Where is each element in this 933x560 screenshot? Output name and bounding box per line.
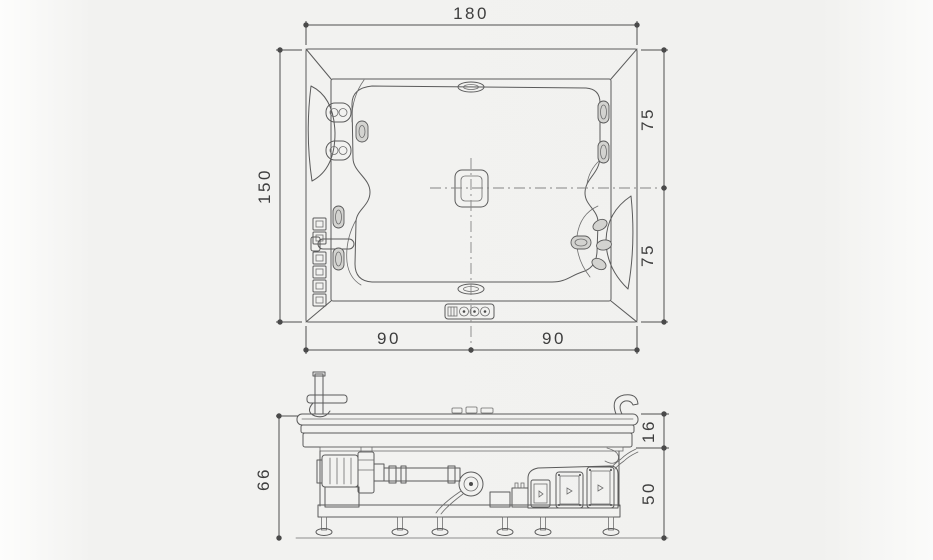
drawing-canvas: 180 150 75 75 90 90 xyxy=(0,0,933,560)
control-box-medium xyxy=(556,472,583,508)
dim-rim-height: 16 xyxy=(636,411,669,450)
foot xyxy=(535,517,551,536)
jet-cluster-right xyxy=(590,217,612,272)
jet-right-wall-upper xyxy=(598,101,609,123)
jet-seatback xyxy=(356,121,368,142)
foot xyxy=(392,517,408,536)
dim-total-depth: 150 xyxy=(255,47,302,324)
foot xyxy=(603,517,619,536)
foot xyxy=(432,517,448,536)
dim-width-halves: 90 90 xyxy=(303,326,639,354)
pump-base xyxy=(325,487,359,507)
side-faucet xyxy=(307,372,347,417)
dim-label-75-lower: 75 xyxy=(638,243,657,267)
square-jet-column xyxy=(313,218,326,306)
dim-label-180: 180 xyxy=(453,4,489,23)
jet-left-wall-upper xyxy=(333,206,344,228)
side-view xyxy=(296,372,668,538)
technical-drawing-bathtub: 180 150 75 75 90 90 xyxy=(0,0,933,560)
jet-right-wall-lower xyxy=(598,141,609,163)
pump-motor xyxy=(322,455,358,487)
apron xyxy=(303,433,632,447)
control-housing xyxy=(528,449,638,508)
dim-label-90-left: 90 xyxy=(377,329,401,348)
drain xyxy=(455,170,488,207)
control-box-large xyxy=(587,467,614,508)
foot xyxy=(316,517,332,536)
jet-left-wall-lower xyxy=(333,248,344,270)
junction-boxes xyxy=(490,483,528,507)
jet-right-large xyxy=(571,236,591,249)
dim-total-height: 66 xyxy=(254,413,298,540)
pump-volute xyxy=(358,452,374,493)
control-box-small xyxy=(531,480,550,507)
control-panel xyxy=(445,304,494,319)
basin-outline xyxy=(352,86,600,282)
dim-frame-height: 50 xyxy=(639,448,667,541)
dim-depth-halves: 75 75 xyxy=(638,47,668,324)
underlip xyxy=(320,447,623,451)
dim-label-50: 50 xyxy=(639,481,658,505)
pump xyxy=(317,447,384,507)
support-feet xyxy=(316,517,619,536)
dim-label-16: 16 xyxy=(639,419,658,443)
rim-profile xyxy=(297,414,638,425)
dim-label-90-right: 90 xyxy=(542,329,566,348)
dim-label-75-upper: 75 xyxy=(638,107,657,131)
rim-molding xyxy=(301,425,634,433)
dim-label-66: 66 xyxy=(254,467,273,491)
piping xyxy=(384,466,460,483)
foot xyxy=(497,517,513,536)
top-view xyxy=(306,49,667,353)
grab-handle xyxy=(605,395,638,464)
frame-rail xyxy=(318,505,620,517)
dim-label-150: 150 xyxy=(255,168,274,204)
jet-left-lower xyxy=(326,141,351,160)
dim-total-width: 180 xyxy=(303,4,639,45)
deck-knobs xyxy=(452,407,493,413)
